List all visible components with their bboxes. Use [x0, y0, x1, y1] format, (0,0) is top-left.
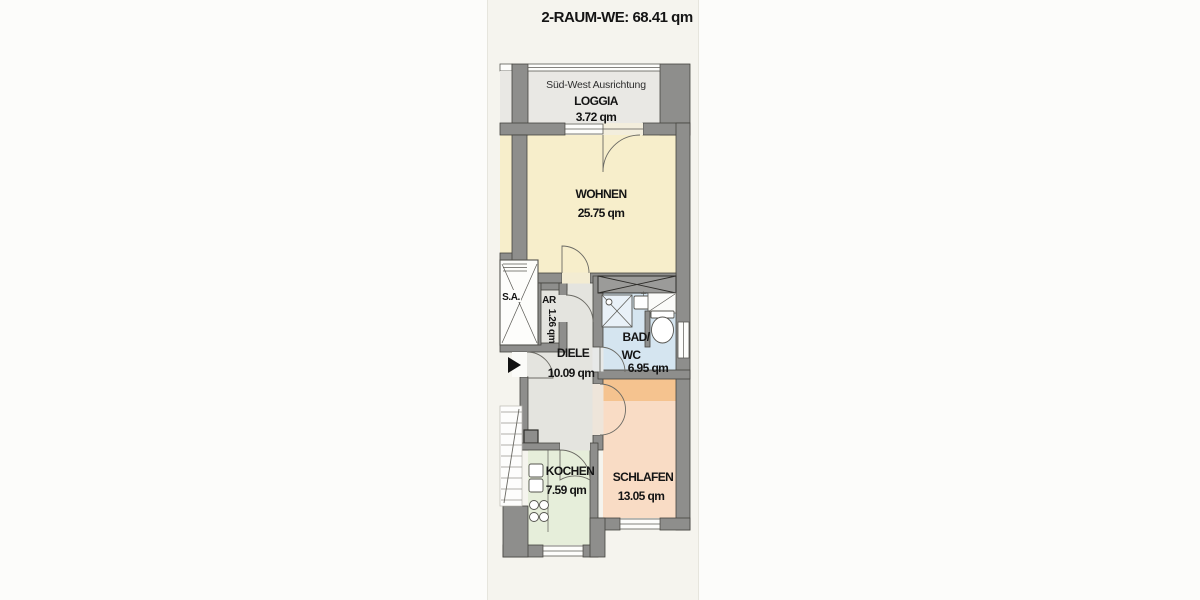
kitchen-sink-icon-2: [529, 479, 543, 492]
schlafen-name-label: SCHLAFEN: [613, 470, 674, 484]
neighbor-loggia: [500, 71, 512, 123]
wall-nib: [524, 430, 538, 443]
floor-plan-page: S.A.: [0, 0, 1200, 600]
ar-name-label: AR: [542, 295, 557, 306]
wohnen-door-opening: [562, 273, 590, 284]
shaft: [598, 276, 676, 293]
diele-name-label: DIELE: [557, 346, 590, 360]
neighbor-railing: [500, 64, 512, 71]
schlafen-bottom-corner: [660, 518, 690, 530]
stove-burner-icon: [530, 513, 539, 522]
bad-name-label-1: BAD/: [623, 330, 651, 344]
loggia-name-label: LOGGIA: [574, 94, 619, 108]
elevator: S.A.: [500, 260, 538, 345]
room-wohnen: [527, 135, 676, 273]
ar-area-label: 1.26 qm: [546, 309, 557, 344]
neighbor-room: [500, 135, 512, 253]
kochen-name-label: KOCHEN: [546, 464, 594, 478]
kochen-top-wall: [520, 443, 560, 450]
outer-wall-left-upper: [512, 135, 527, 260]
wohnen-area-label: 25.75 qm: [578, 206, 625, 220]
outer-wall-bottom-left: [503, 506, 528, 557]
bad-name-label-2: WC: [622, 348, 642, 362]
floor-plan: S.A.: [0, 0, 1200, 600]
loggia-area-label: 3.72 qm: [576, 110, 617, 124]
loggia-bottom-wall-left: [500, 123, 565, 135]
kochen-door-opening: [560, 443, 590, 451]
kitchen-sink-icon: [529, 464, 543, 477]
stove-burner-icon: [540, 513, 549, 522]
kochen-schlafen-step-wall: [590, 518, 605, 557]
stove-burner-icon: [540, 501, 549, 510]
plan-title: 2-RAUM-WE: 68.41 qm: [541, 9, 693, 26]
wohnen-name-label: WOHNEN: [575, 187, 626, 201]
staircase: [500, 406, 522, 506]
elevator-label: S.A.: [502, 292, 520, 303]
shower-head-icon: [606, 299, 612, 305]
diele-area-label: 10.09 qm: [548, 366, 595, 380]
kochen-area-label: 7.59 qm: [546, 483, 587, 497]
schlafen-band: [603, 379, 676, 401]
toilet-icon: [652, 317, 674, 343]
bad-area-label: 6.95 qm: [628, 361, 669, 375]
schlafen-door-opening: [593, 384, 604, 435]
loggia-orientation-label: Süd-West Ausrichtung: [546, 79, 646, 91]
schlafen-area-label: 13.05 qm: [618, 489, 665, 503]
ar-door-opening: [557, 295, 568, 322]
stove-burner-icon: [530, 501, 539, 510]
